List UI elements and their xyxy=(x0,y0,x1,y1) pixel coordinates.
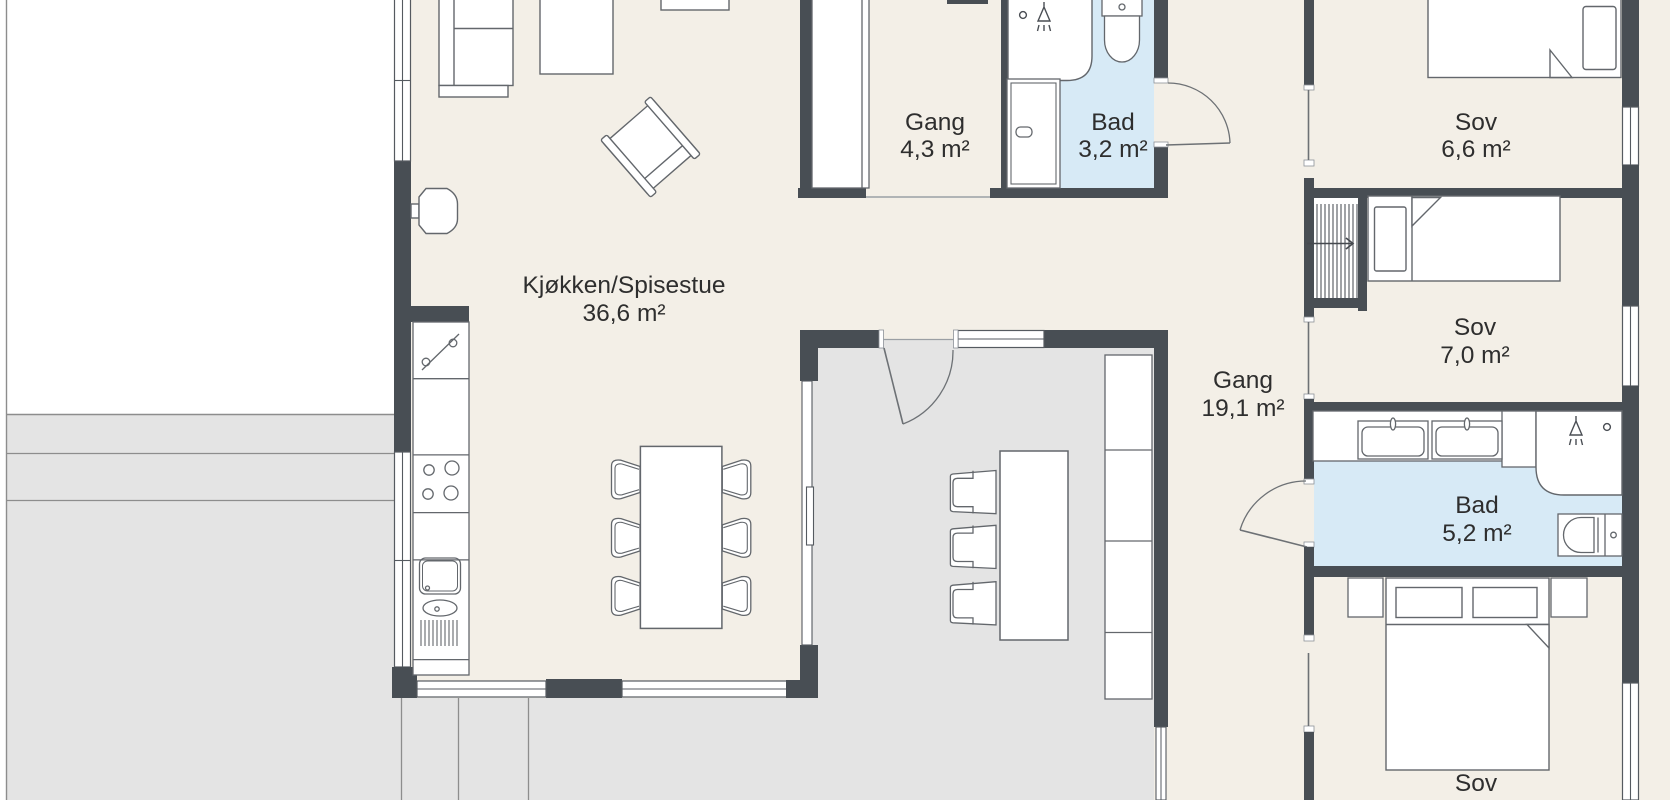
svg-text:Sov: Sov xyxy=(1455,109,1498,136)
svg-text:Sov: Sov xyxy=(1454,314,1497,341)
svg-text:Bad: Bad xyxy=(1455,492,1499,519)
svg-text:Sov: Sov xyxy=(1455,770,1498,797)
svg-text:7,0 m²: 7,0 m² xyxy=(1440,342,1509,369)
svg-text:6,6 m²: 6,6 m² xyxy=(1441,136,1510,163)
svg-text:36,6 m²: 36,6 m² xyxy=(582,300,665,327)
svg-text:Gang: Gang xyxy=(905,109,965,136)
svg-text:4,3 m²: 4,3 m² xyxy=(900,136,969,163)
svg-text:3,2 m²: 3,2 m² xyxy=(1078,136,1147,163)
svg-text:5,2 m²: 5,2 m² xyxy=(1442,520,1511,547)
svg-text:Bad: Bad xyxy=(1091,109,1135,136)
svg-text:19,1 m²: 19,1 m² xyxy=(1201,395,1284,422)
svg-text:Gang: Gang xyxy=(1213,367,1273,394)
svg-text:Kjøkken/Spisestue: Kjøkken/Spisestue xyxy=(523,272,726,299)
